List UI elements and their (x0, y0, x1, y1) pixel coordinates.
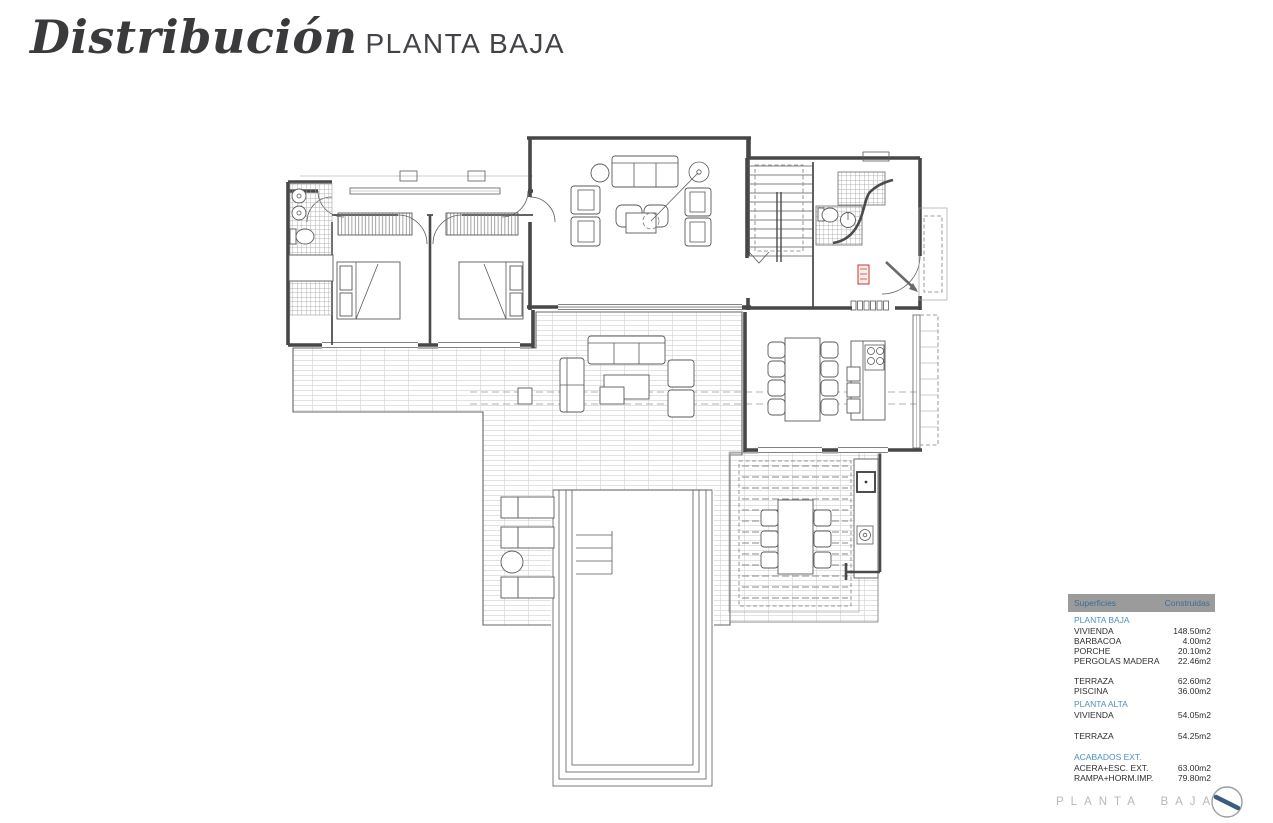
row-label: TERRAZA (1074, 731, 1114, 741)
sofa (612, 156, 678, 187)
entrance-hall (742, 152, 920, 310)
table-row: PISCINA 36.00m2 (1068, 686, 1215, 696)
shower (838, 172, 885, 205)
row-label: VIVIENDA (1074, 626, 1114, 636)
pool (551, 490, 714, 790)
table-row: PERGOLAS MADERA 22.46m2 (1068, 656, 1215, 666)
row-value: 4.00m2 (1183, 636, 1211, 646)
row-label: PISCINA (1074, 686, 1108, 696)
table-row: VIVIENDA 54.05m2 (1068, 710, 1215, 720)
areas-table-header: Superficies Construidas (1068, 594, 1215, 612)
side-table-round (501, 551, 523, 573)
row-label: BARBACOA (1074, 636, 1121, 646)
wardrobe (338, 213, 412, 235)
toilet-icon (290, 229, 314, 244)
row-value: 79.80m2 (1178, 773, 1211, 783)
areas-table: Superficies Construidas PLANTA BAJA VIVI… (1068, 594, 1215, 783)
row-label: TERRAZA (1074, 676, 1114, 686)
table-row: TERRAZA 54.25m2 (1068, 731, 1215, 741)
electrical-panel (858, 265, 869, 284)
compass-icon (1209, 784, 1245, 820)
outdoor-dining-table (761, 500, 831, 574)
kitchen-island (847, 341, 885, 420)
bed-double (459, 262, 523, 319)
canopy-dashed-outlines (919, 208, 947, 445)
bathroom-main (289, 183, 333, 315)
row-value: 62.60m2 (1178, 676, 1211, 686)
table-row: BARBACOA 4.00m2 (1068, 636, 1215, 646)
living-room-furniture (571, 156, 711, 246)
toilet-icon (818, 208, 838, 222)
col-construidas: Construidas (1165, 598, 1210, 608)
table-row: RAMPA+HORM.IMP. 79.80m2 (1068, 773, 1215, 783)
armchair-pair-left (571, 186, 600, 246)
row-value: 148.50m2 (1173, 626, 1211, 636)
bedroom-1 (337, 213, 412, 319)
row-value: 20.10m2 (1178, 646, 1211, 656)
table-row: VIVIENDA 148.50m2 (1068, 626, 1215, 636)
guest-bathroom (816, 206, 862, 245)
table-row: PORCHE 20.10m2 (1068, 646, 1215, 656)
coffee-tables (616, 205, 668, 233)
stair-direction-arrow (749, 252, 769, 263)
row-value: 22.46m2 (1178, 656, 1211, 666)
entry-door (882, 256, 920, 294)
stool (847, 383, 860, 397)
row-label: VIVIENDA (1074, 710, 1114, 720)
row-value: 63.00m2 (1178, 763, 1211, 773)
footer-plan-label: PLANTA BAJA (1056, 796, 1217, 808)
table-row: TERRAZA 62.60m2 (1068, 676, 1215, 686)
section-title: PLANTA ALTA (1068, 700, 1215, 710)
bed-double (337, 262, 400, 319)
row-value: 54.05m2 (1178, 710, 1211, 720)
row-label: PERGOLAS MADERA (1074, 656, 1160, 666)
wardrobe (446, 213, 518, 235)
bedroom-2 (446, 213, 523, 319)
sink-icon (292, 206, 306, 220)
radiator (851, 301, 889, 310)
stool (847, 367, 860, 381)
stool (847, 399, 860, 413)
row-label: ACERA+ESC. EXT. (1074, 763, 1148, 773)
row-label: RAMPA+HORM.IMP. (1074, 773, 1153, 783)
table-row: ACERA+ESC. EXT. 63.00m2 (1068, 763, 1215, 773)
row-value: 54.25m2 (1178, 731, 1211, 741)
section-title: PLANTA BAJA (1068, 616, 1215, 626)
sink-icon (292, 189, 306, 203)
col-superficies: Superficies (1074, 598, 1116, 608)
armchair-pair-right (685, 188, 711, 246)
compass-needle (1216, 797, 1238, 808)
dining-table-set (768, 338, 838, 421)
sun-loungers (501, 497, 554, 598)
row-value: 36.00m2 (1178, 686, 1211, 696)
row-label: PORCHE (1074, 646, 1110, 656)
side-table-round (591, 164, 609, 182)
section-title: ACABADOS EXT. (1068, 753, 1215, 763)
